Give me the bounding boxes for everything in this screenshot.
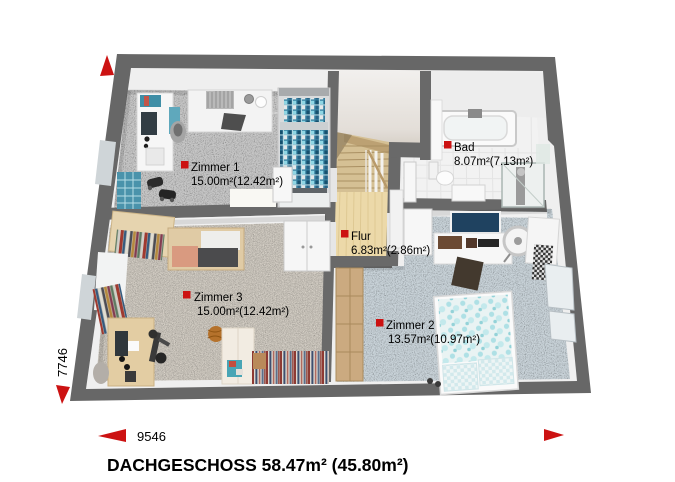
svg-text:6.83m²(2.86m²): 6.83m²(2.86m²) xyxy=(351,245,430,257)
svg-text:15.00m²(12.42m²): 15.00m²(12.42m²) xyxy=(191,176,283,188)
svg-text:DACHGESCHOSS 58.47m² (45.80m²): DACHGESCHOSS 58.47m² (45.80m²) xyxy=(107,455,408,475)
svg-text:Zimmer 3: Zimmer 3 xyxy=(194,292,243,304)
svg-text:Flur: Flur xyxy=(351,231,371,243)
svg-text:13.57m²(10.97m²): 13.57m²(10.97m²) xyxy=(388,334,480,346)
svg-text:Zimmer 2: Zimmer 2 xyxy=(386,320,435,332)
svg-text:8.07m²(7.13m²): 8.07m²(7.13m²) xyxy=(454,156,533,168)
svg-text:7746: 7746 xyxy=(55,348,70,377)
svg-text:Zimmer 1: Zimmer 1 xyxy=(191,162,240,174)
svg-text:15.00m²(12.42m²): 15.00m²(12.42m²) xyxy=(197,306,289,318)
svg-text:9546: 9546 xyxy=(137,429,166,444)
svg-text:Bad: Bad xyxy=(454,142,474,154)
